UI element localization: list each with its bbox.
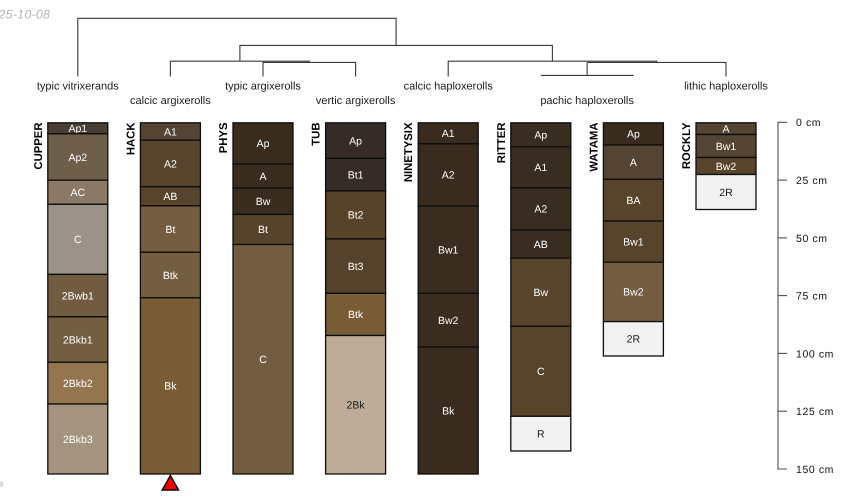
- svg-text:25 cm: 25 cm: [796, 175, 828, 187]
- svg-text:Bw2: Bw2: [716, 161, 737, 173]
- svg-text:TUB: TUB: [311, 123, 323, 146]
- svg-text:C: C: [537, 366, 545, 378]
- svg-text:A1: A1: [164, 126, 177, 138]
- svg-text:C: C: [259, 354, 267, 366]
- svg-text:A: A: [722, 124, 729, 136]
- svg-text:AB: AB: [163, 191, 177, 203]
- svg-text:2Bk: 2Bk: [347, 400, 366, 412]
- svg-text:Bw: Bw: [534, 287, 549, 299]
- svg-text:Ap: Ap: [349, 135, 362, 147]
- svg-text:2Bkb2: 2Bkb2: [63, 378, 93, 390]
- svg-text:RITTER: RITTER: [496, 123, 508, 164]
- svg-text:ROCKLY: ROCKLY: [681, 122, 693, 169]
- svg-text:typic argixerolls: typic argixerolls: [225, 80, 301, 92]
- svg-text:2R: 2R: [627, 334, 641, 346]
- svg-text:A: A: [630, 157, 637, 169]
- svg-text:Bt: Bt: [258, 224, 268, 236]
- svg-text:125 cm: 125 cm: [796, 406, 834, 418]
- svg-text:Bt2: Bt2: [348, 210, 364, 222]
- svg-text:lithic haploxerolls: lithic haploxerolls: [684, 80, 768, 92]
- svg-text:Ap2: Ap2: [68, 152, 87, 164]
- svg-text:75 cm: 75 cm: [796, 291, 828, 303]
- svg-text:50 cm: 50 cm: [796, 233, 828, 245]
- svg-text:2Bwb1: 2Bwb1: [62, 290, 94, 302]
- svg-text:Bw1: Bw1: [438, 245, 459, 257]
- svg-text:Bt3: Bt3: [348, 261, 364, 273]
- svg-text:Ap: Ap: [534, 130, 547, 142]
- svg-text:vertic argixerolls: vertic argixerolls: [316, 95, 396, 107]
- svg-text:A: A: [259, 171, 266, 183]
- svg-text:Ap: Ap: [257, 138, 270, 150]
- svg-text:Bk: Bk: [164, 381, 177, 393]
- svg-text:Bk: Bk: [442, 405, 455, 417]
- svg-text:A1: A1: [534, 162, 547, 174]
- svg-text:R: R: [537, 428, 545, 440]
- svg-text:2Bkb1: 2Bkb1: [63, 334, 93, 346]
- svg-text:2R: 2R: [719, 187, 733, 199]
- svg-text:Bw2: Bw2: [438, 315, 459, 327]
- svg-text:Bw1: Bw1: [623, 236, 644, 248]
- svg-text:C: C: [74, 234, 82, 246]
- svg-text:Bw1: Bw1: [716, 141, 737, 153]
- svg-text:Btk: Btk: [348, 309, 364, 321]
- svg-text:PHYS: PHYS: [218, 122, 230, 153]
- svg-text:Bw2: Bw2: [623, 287, 644, 299]
- svg-text:A2: A2: [442, 170, 455, 182]
- svg-text:BA: BA: [626, 195, 640, 207]
- svg-text:A1: A1: [442, 128, 455, 140]
- svg-text:100 cm: 100 cm: [796, 348, 834, 360]
- svg-text:Bw: Bw: [256, 196, 271, 208]
- svg-text:25-10-08: 25-10-08: [0, 8, 50, 22]
- svg-text:typic vitrixerands: typic vitrixerands: [37, 80, 119, 92]
- svg-text:CUPPER: CUPPER: [33, 123, 45, 170]
- svg-text:pachic haploxerolls: pachic haploxerolls: [540, 95, 634, 107]
- svg-text:Bt1: Bt1: [348, 170, 364, 182]
- svg-text:Btk: Btk: [163, 270, 179, 282]
- svg-text:HACK: HACK: [125, 122, 137, 155]
- svg-text:A2: A2: [164, 158, 177, 170]
- svg-text:NINETYSIX: NINETYSIX: [403, 122, 415, 182]
- svg-text:2Bkb3: 2Bkb3: [63, 434, 93, 446]
- svg-text:calcic argixerolls: calcic argixerolls: [130, 95, 211, 107]
- svg-text:A2: A2: [534, 204, 547, 216]
- svg-text:calcic haploxerolls: calcic haploxerolls: [404, 80, 494, 92]
- svg-text:AC: AC: [71, 187, 86, 199]
- svg-text:150 cm: 150 cm: [796, 464, 834, 476]
- svg-text:0 cm: 0 cm: [796, 117, 821, 129]
- svg-text:Bt: Bt: [165, 224, 175, 236]
- svg-text:AB: AB: [534, 239, 548, 251]
- svg-text:Ap: Ap: [627, 129, 640, 141]
- svg-text:WATAMA: WATAMA: [588, 123, 600, 172]
